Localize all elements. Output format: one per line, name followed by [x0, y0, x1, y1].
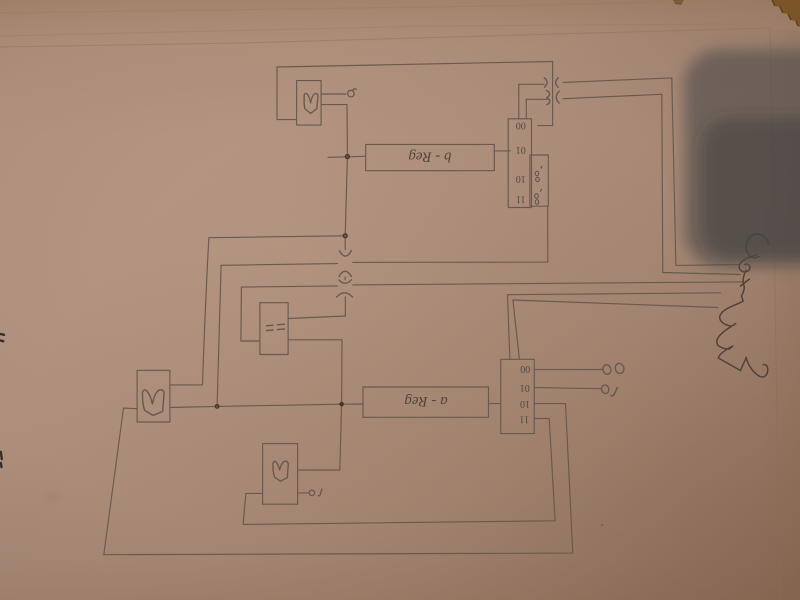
svg-text:b - Reg: b - Reg: [408, 149, 452, 165]
svg-text:11: 11: [516, 193, 526, 204]
svg-text:11: 11: [519, 414, 529, 425]
svg-text:01: 01: [516, 144, 526, 155]
svg-text:10: 10: [520, 398, 530, 409]
svg-text:00: 00: [516, 119, 526, 130]
svg-text:a - Reg: a - Reg: [404, 393, 448, 409]
svg-text:01: 01: [520, 382, 530, 393]
svg-text:10: 10: [516, 173, 526, 184]
svg-text:00: 00: [520, 363, 530, 374]
